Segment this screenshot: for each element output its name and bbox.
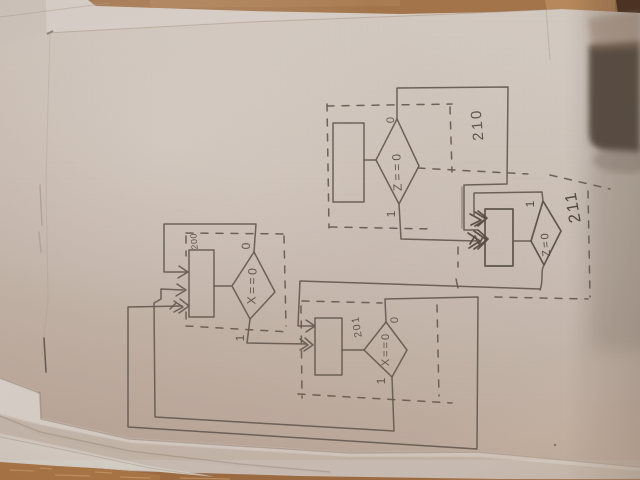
svg-text:200: 200 bbox=[188, 233, 199, 250]
svg-text:1: 1 bbox=[384, 210, 398, 217]
svg-text:210: 210 bbox=[468, 107, 488, 141]
svg-text:1: 1 bbox=[233, 334, 247, 341]
svg-text:0: 0 bbox=[385, 117, 397, 123]
svg-text:X==0: X==0 bbox=[244, 265, 259, 304]
svg-text:Z==0: Z==0 bbox=[389, 151, 404, 191]
svg-text:Z=0: Z=0 bbox=[539, 231, 553, 257]
svg-text:0: 0 bbox=[239, 242, 253, 249]
svg-text:1: 1 bbox=[374, 377, 388, 384]
svg-text:1: 1 bbox=[523, 200, 537, 207]
svg-text:X==0: X==0 bbox=[380, 332, 392, 366]
svg-text:0: 0 bbox=[389, 317, 401, 323]
